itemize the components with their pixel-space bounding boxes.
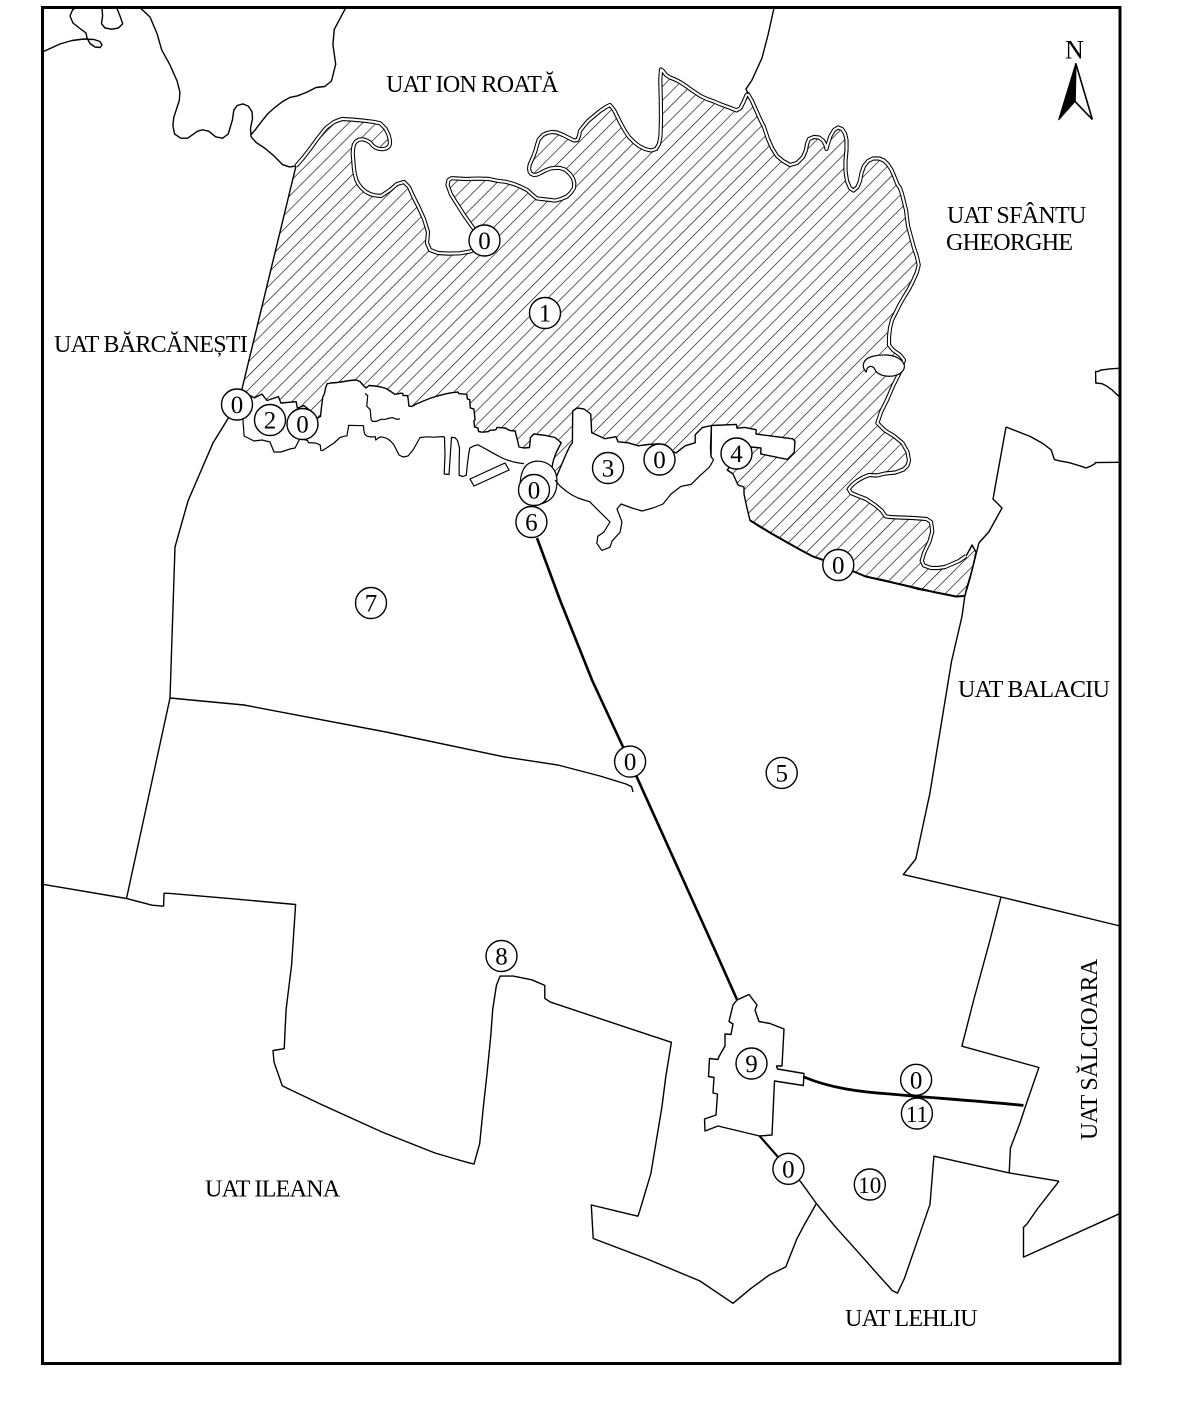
svg-text:UAT ILEANA: UAT ILEANA — [205, 1177, 341, 1203]
svg-text:UAT SĂLCIOARA: UAT SĂLCIOARA — [1077, 958, 1103, 1140]
svg-text:0: 0 — [910, 1067, 923, 1094]
svg-text:UAT SFÂNTU: UAT SFÂNTU — [947, 203, 1086, 229]
svg-text:0: 0 — [653, 447, 666, 474]
svg-text:0: 0 — [528, 478, 541, 505]
svg-text:N: N — [1065, 36, 1084, 65]
svg-text:0: 0 — [478, 228, 491, 255]
svg-text:9: 9 — [745, 1051, 758, 1078]
svg-text:0: 0 — [624, 749, 637, 776]
svg-text:1: 1 — [539, 301, 552, 328]
svg-text:5: 5 — [775, 760, 788, 787]
svg-text:0: 0 — [231, 392, 244, 419]
svg-text:7: 7 — [365, 591, 378, 618]
svg-text:0: 0 — [782, 1156, 795, 1183]
svg-text:0: 0 — [296, 412, 309, 439]
svg-text:UAT LEHLIU: UAT LEHLIU — [845, 1306, 977, 1332]
svg-text:8: 8 — [495, 944, 508, 971]
svg-text:10: 10 — [858, 1173, 881, 1198]
svg-text:0: 0 — [832, 553, 845, 580]
svg-text:3: 3 — [602, 456, 615, 483]
svg-text:UAT BALACIU: UAT BALACIU — [958, 677, 1110, 703]
svg-text:GHEORGHE: GHEORGHE — [946, 230, 1072, 256]
svg-text:11: 11 — [906, 1102, 928, 1127]
svg-text:UAT ION ROATĂ: UAT ION ROATĂ — [386, 72, 559, 98]
svg-text:UAT BĂRCĂNEȘTI: UAT BĂRCĂNEȘTI — [54, 332, 248, 358]
svg-text:2: 2 — [264, 408, 277, 435]
svg-text:4: 4 — [730, 441, 743, 468]
svg-text:6: 6 — [525, 510, 538, 537]
